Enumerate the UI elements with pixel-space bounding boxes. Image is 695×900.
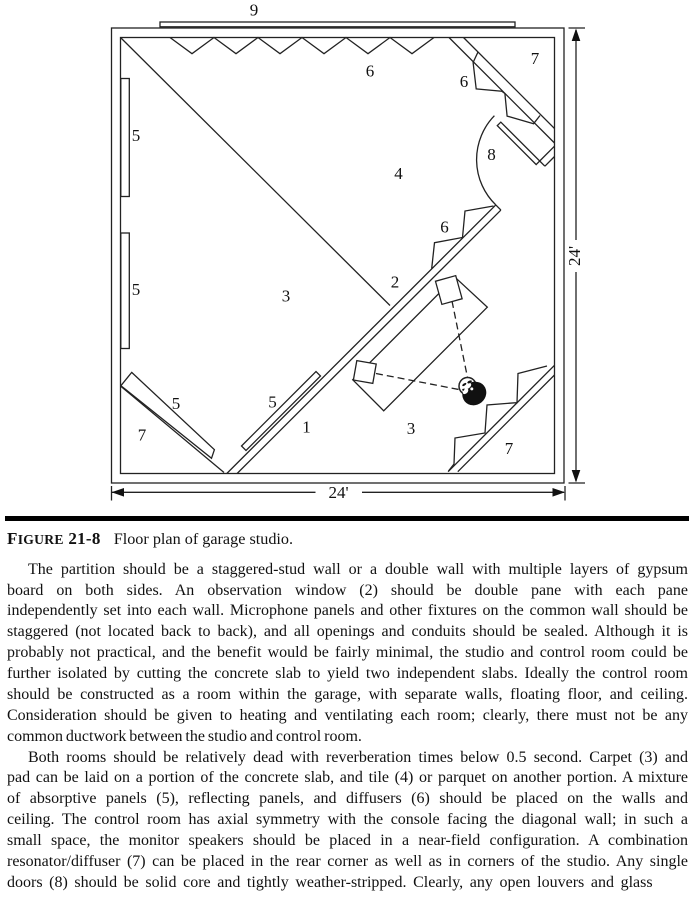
svg-text:6: 6 [460, 72, 469, 91]
svg-text:4: 4 [394, 164, 403, 183]
svg-text:3: 3 [282, 287, 291, 306]
svg-text:7: 7 [505, 439, 514, 458]
svg-text:5: 5 [132, 280, 141, 299]
svg-text:24': 24' [328, 483, 348, 502]
svg-text:5: 5 [268, 393, 277, 412]
svg-text:24': 24' [565, 246, 584, 266]
svg-text:6: 6 [366, 62, 375, 81]
svg-text:7: 7 [531, 49, 540, 68]
svg-text:2: 2 [391, 273, 400, 292]
svg-text:8: 8 [487, 145, 496, 164]
svg-text:1: 1 [302, 418, 311, 437]
svg-text:6: 6 [440, 218, 449, 237]
svg-text:5: 5 [172, 394, 181, 413]
svg-text:7: 7 [138, 426, 147, 445]
svg-text:3: 3 [407, 419, 416, 438]
svg-text:5: 5 [132, 126, 141, 145]
svg-text:9: 9 [250, 1, 259, 20]
